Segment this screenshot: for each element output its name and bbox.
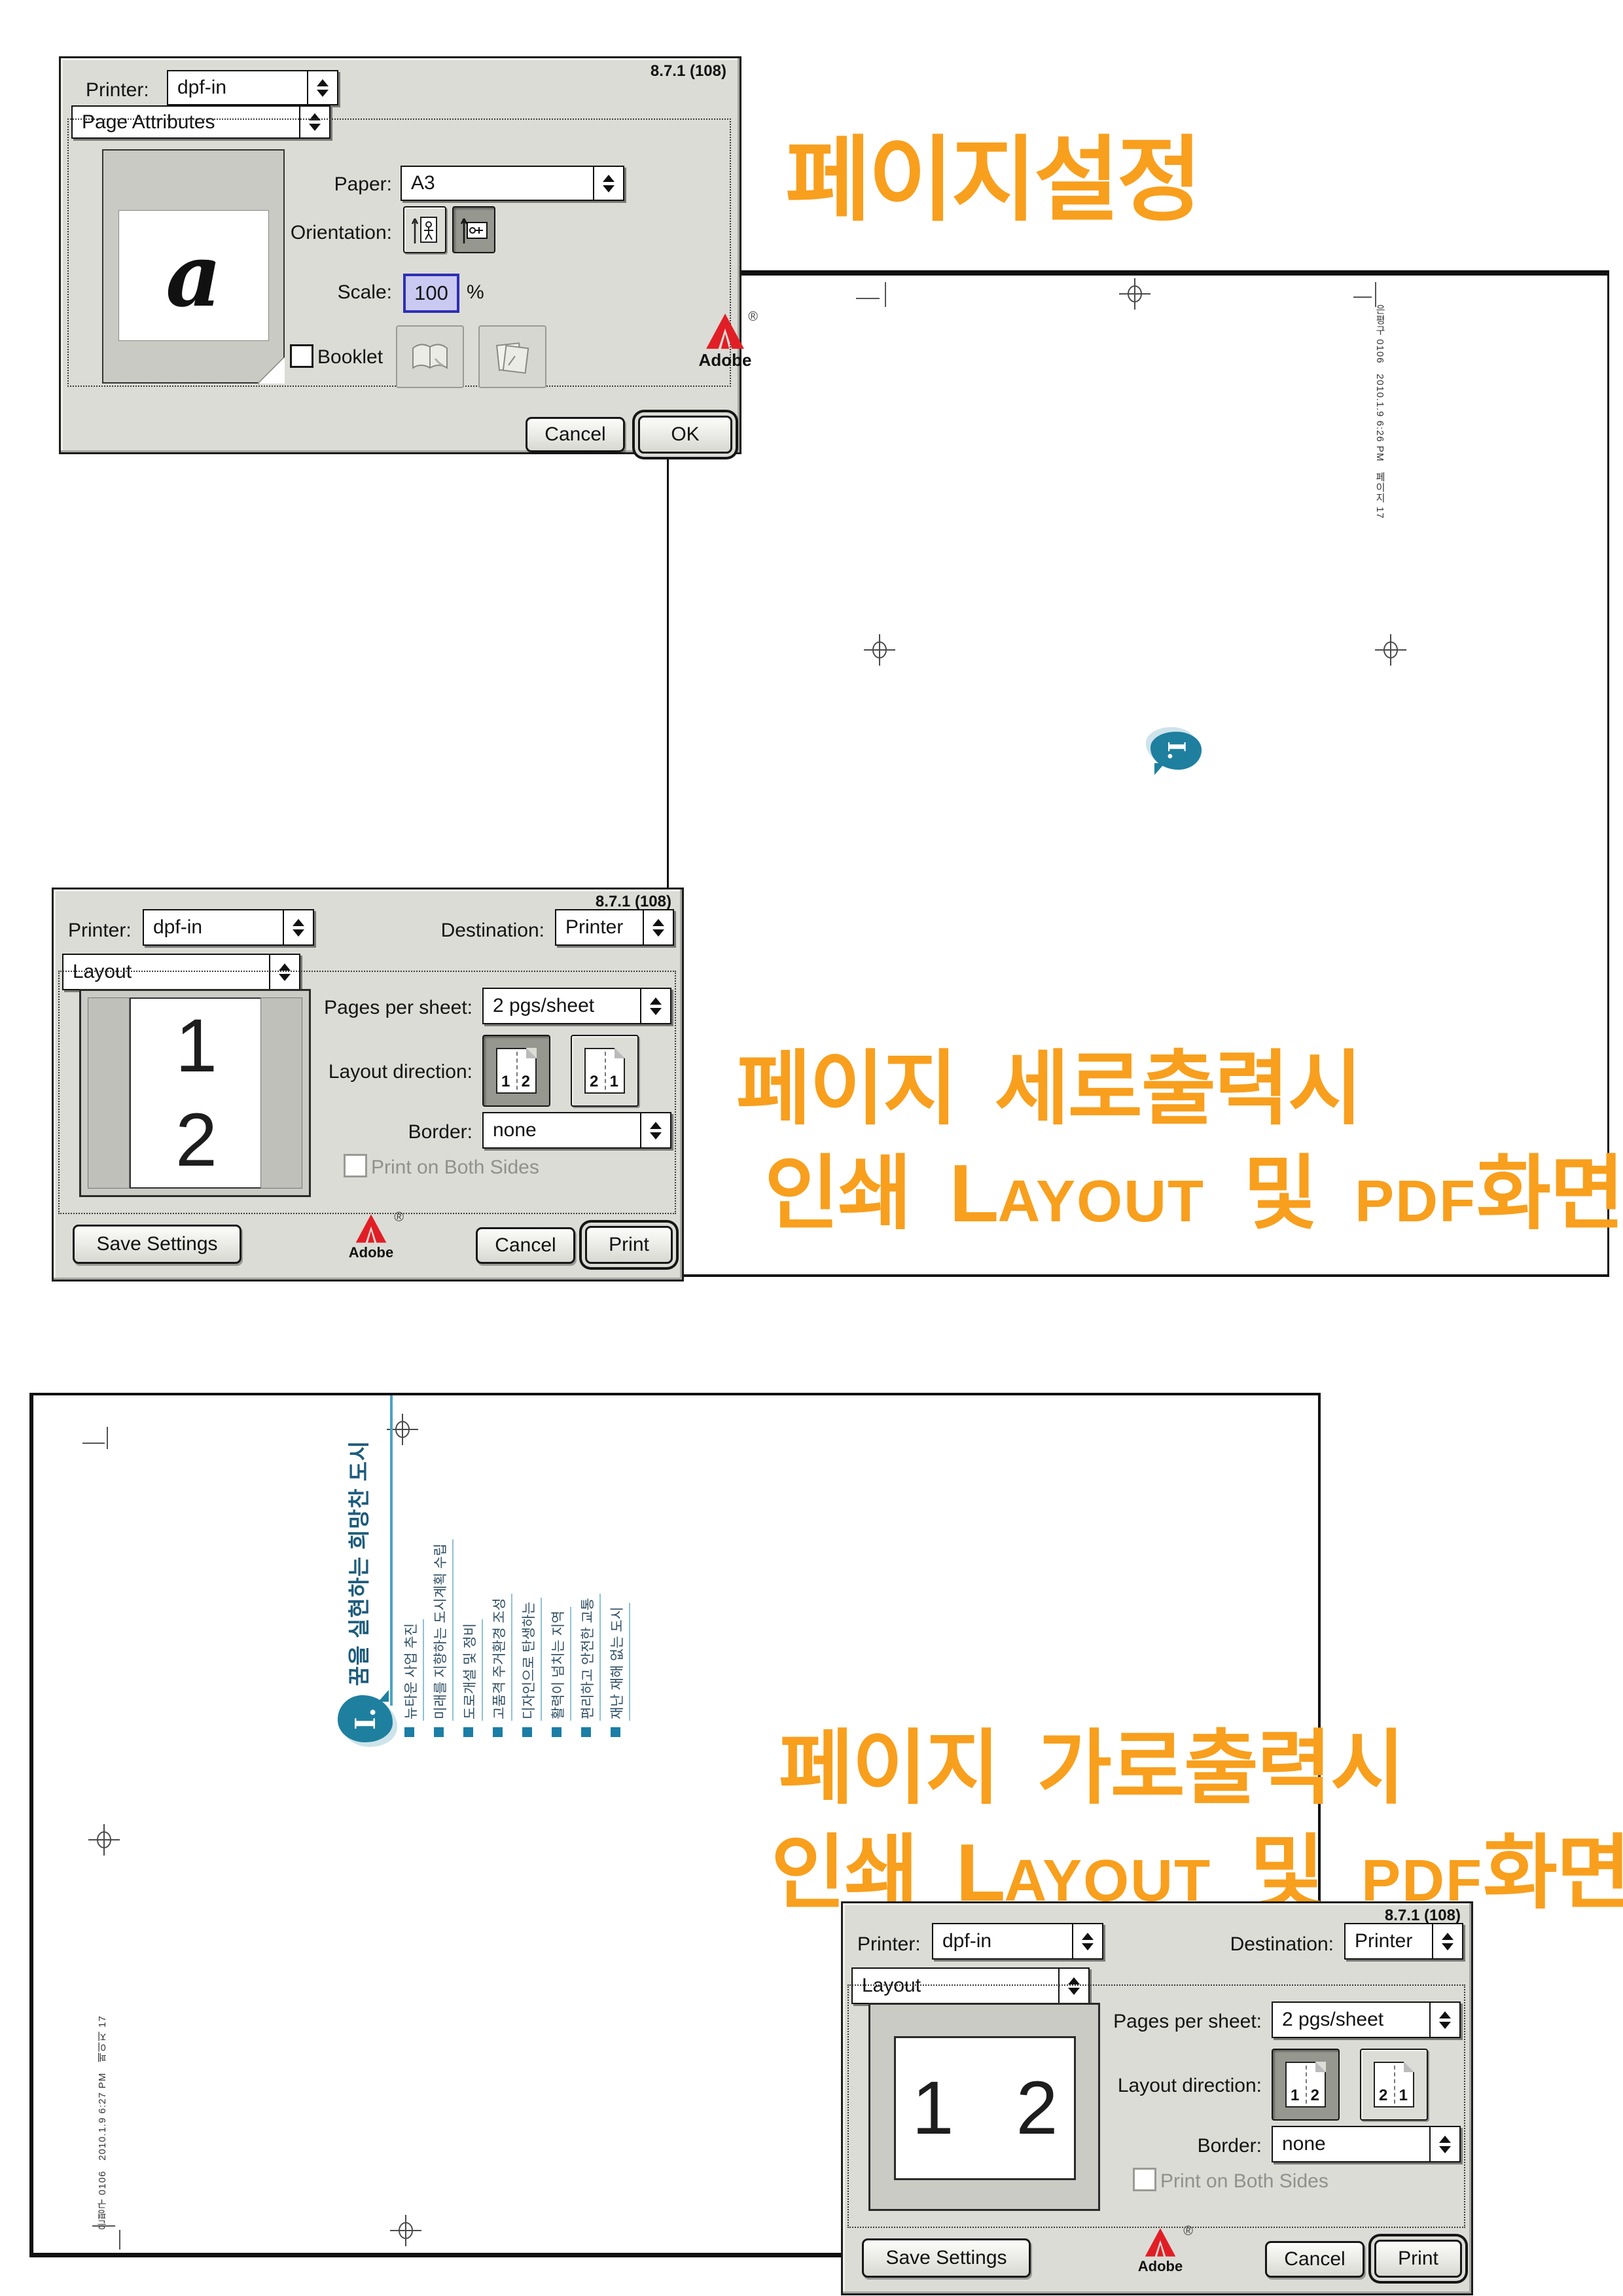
annotation-landscape-line1: 페이지 가로출력시	[779, 1728, 1404, 1809]
print-layout-dialog-landscape: 8.7.1 (108) Printer: dpf-in Destination:…	[841, 1901, 1473, 2295]
layout-direction-ltr-button[interactable]: 1 2	[482, 1035, 550, 1107]
booklet-label: Booklet	[317, 346, 383, 368]
popup-arrows-icon	[640, 989, 670, 1023]
popup-arrows-icon	[1072, 1924, 1102, 1958]
layout-direction-ltr-button[interactable]: 1 2	[1272, 2049, 1340, 2121]
annotation-portrait-line2: 인쇄 LAYOUT 및 PDF화면	[764, 1153, 1623, 1234]
bullet-icon	[522, 1727, 532, 1737]
workspace: 은평구 0106 2010.1.9 6:26 PM 페이지 17 I.	[0, 0, 1623, 2296]
print-button[interactable]: Print	[1374, 2240, 1462, 2278]
layout-direction-label: Layout direction:	[1088, 2075, 1262, 2097]
layout-direction-rtl-icon: 2 1	[584, 1048, 625, 1094]
registration-mark-icon	[1375, 634, 1406, 666]
chapter-bubble-logo: I.	[1150, 732, 1202, 770]
driver-version: 8.7.1 (108)	[1385, 1907, 1461, 1925]
page-orientation-preview: a	[102, 149, 285, 384]
cancel-button[interactable]: Cancel	[526, 417, 625, 452]
paper-popup[interactable]: A3	[401, 166, 624, 201]
registration-mark-icon	[88, 1824, 120, 1856]
popup-arrows-icon	[593, 167, 623, 200]
annotation-portrait-line1: 페이지 세로출력시	[736, 1049, 1361, 1130]
destination-label: Destination:	[410, 920, 544, 942]
document-slug-text: 은평구 0106 2010.1.9 6:27 PM 페이지 17	[96, 2034, 109, 2230]
pages-per-sheet-popup[interactable]: 2 pgs/sheet	[482, 988, 671, 1024]
preview-sheet: a	[118, 210, 269, 341]
title-rule	[390, 1395, 393, 1706]
popup-arrows-icon	[307, 71, 337, 104]
popup-arrows-icon	[643, 910, 673, 944]
registration-mark-icon	[390, 2215, 421, 2246]
adobe-logo-icon	[705, 314, 745, 349]
rotated-document-content: I. 꿈을 실현하는 희망찬 도시 뉴타운 사업 추진 미래를 지향하는 도시계…	[331, 1395, 652, 1750]
destination-popup[interactable]: Printer	[1344, 1923, 1463, 1960]
popup-arrows-icon	[1429, 2003, 1459, 2037]
page-setup-dialog: 8.7.1 (108) Printer: dpf-in Page Attribu…	[59, 56, 741, 454]
booklet-fold-button[interactable]	[478, 325, 546, 388]
popup-arrows-icon	[1432, 1924, 1462, 1958]
preview-page-number: 2	[1016, 2065, 1058, 2151]
document-title: 꿈을 실현하는 희망찬 도시	[342, 1441, 373, 1686]
registration-mark-icon	[1119, 278, 1150, 310]
preview-page-number: 2	[175, 1097, 217, 1183]
bullet-icon	[434, 1727, 444, 1737]
document-slug-text: 은평구 0106 2010.1.9 6:26 PM 페이지 17	[1373, 304, 1387, 520]
list-item: 도로개설 및 정비	[459, 1403, 489, 1737]
printer-label: Printer:	[857, 1933, 921, 1956]
print-both-sides-checkbox[interactable]	[1133, 2168, 1156, 2191]
print-button[interactable]: Print	[585, 1226, 673, 1264]
layout-preview: 1 2	[868, 2003, 1100, 2211]
preview-page-number: 1	[912, 2065, 954, 2151]
pages-per-sheet-label: Pages per sheet:	[1088, 2011, 1262, 2033]
layout-direction-rtl-icon: 2 1	[1374, 2062, 1414, 2108]
layout-direction-label: Layout direction:	[298, 1061, 473, 1083]
print-both-sides-label: Print on Both Sides	[1160, 2170, 1329, 2193]
driver-version: 8.7.1 (108)	[596, 893, 671, 911]
registered-mark: ®	[748, 310, 758, 325]
registered-mark: ®	[394, 1210, 404, 1225]
cancel-button[interactable]: Cancel	[476, 1227, 575, 1264]
adobe-logo-icon	[355, 1214, 387, 1243]
bullet-icon	[552, 1727, 562, 1737]
scale-unit: %	[467, 281, 484, 304]
portrait-orientation-icon	[410, 213, 439, 246]
bullet-icon	[581, 1727, 591, 1737]
destination-popup[interactable]: Printer	[555, 909, 674, 946]
printer-label: Printer:	[86, 79, 149, 101]
list-item: 재난 재해 없는 도시	[607, 1403, 636, 1737]
printer-label: Printer:	[68, 920, 132, 942]
open-booklet-icon	[409, 339, 451, 374]
preview-glyph: a	[166, 225, 222, 327]
border-popup[interactable]: none	[482, 1112, 671, 1149]
annotation-text: L	[950, 1149, 998, 1239]
layout-direction-ltr-icon: 1 2	[496, 1048, 537, 1094]
booklet-open-button[interactable]	[396, 325, 464, 388]
save-settings-button[interactable]: Save Settings	[862, 2238, 1031, 2278]
bullet-icon	[493, 1727, 503, 1737]
list-item: 편리하고 안전한 교통	[577, 1403, 607, 1737]
document-item-list: 뉴타운 사업 추진 미래를 지향하는 도시계획 수립 도로개설 및 정비 고품격…	[401, 1403, 636, 1737]
folded-booklet-icon	[493, 339, 532, 374]
annotation-text: 화면	[1476, 1149, 1623, 1239]
print-both-sides-checkbox[interactable]	[344, 1154, 367, 1177]
bullet-icon	[463, 1727, 473, 1737]
list-item: 미래를 지향하는 도시계획 수립	[430, 1403, 459, 1737]
preview-sheet: 1 2	[894, 2036, 1076, 2180]
orientation-label: Orientation:	[270, 222, 392, 244]
orientation-portrait-button[interactable]	[403, 206, 446, 253]
print-both-sides-label: Print on Both Sides	[371, 1157, 539, 1179]
layout-direction-rtl-button[interactable]: 2 1	[571, 1035, 639, 1107]
annotation-page-setup-title: 페이지설정	[785, 134, 1200, 227]
preview-margin	[260, 997, 302, 1189]
preview-page-number: 1	[175, 1003, 217, 1089]
bullet-icon	[404, 1727, 414, 1737]
driver-version: 8.7.1 (108)	[651, 62, 726, 81]
annotation-text: PDF	[1355, 1169, 1476, 1234]
list-item: 뉴타운 사업 추진	[401, 1403, 430, 1737]
layout-direction-rtl-button[interactable]: 2 1	[1360, 2049, 1428, 2121]
adobe-logo-icon	[1144, 2228, 1177, 2257]
adobe-logo: ® Adobe	[332, 1214, 410, 1261]
popup-arrows-icon	[1429, 2127, 1459, 2161]
folded-corner-icon	[259, 357, 285, 384]
pages-per-sheet-popup[interactable]: 2 pgs/sheet	[1272, 2001, 1461, 2038]
border-label: Border:	[298, 1121, 473, 1143]
bullet-icon	[611, 1727, 620, 1737]
border-label: Border:	[1088, 2135, 1262, 2157]
save-settings-button[interactable]: Save Settings	[73, 1225, 241, 1264]
printer-popup[interactable]: dpf-in	[932, 1923, 1103, 1960]
scale-input[interactable]: 100	[403, 274, 459, 313]
popup-arrows-icon	[640, 1113, 670, 1147]
adobe-logo: ® Adobe	[1121, 2228, 1200, 2275]
destination-label: Destination:	[1200, 1933, 1334, 1956]
preview-margin	[88, 997, 130, 1189]
layout-preview: 1 2	[79, 989, 311, 1197]
adobe-logo: ® Adobe	[686, 314, 764, 370]
annotation-text: 및	[1243, 1149, 1317, 1239]
paper-label: Paper:	[270, 173, 392, 196]
preview-sheet: 1 2	[130, 997, 263, 1189]
pages-per-sheet-label: Pages per sheet:	[298, 997, 473, 1019]
orientation-landscape-button[interactable]	[452, 206, 495, 253]
print-layout-dialog-portrait: 8.7.1 (108) Printer: dpf-in Destination:…	[52, 888, 684, 1282]
annotation-text: 화면	[1483, 1828, 1623, 1918]
layout-direction-ltr-icon: 1 2	[1285, 2062, 1326, 2108]
list-item: 고품격 주거환경 조성	[489, 1403, 518, 1737]
chapter-bubble-logo: I.	[338, 1695, 393, 1742]
popup-arrows-icon	[283, 910, 313, 944]
printer-popup[interactable]: dpf-in	[167, 70, 338, 105]
registration-mark-icon	[864, 634, 895, 666]
landscape-orientation-icon	[459, 213, 488, 246]
list-item: 활력이 넘치는 지역	[548, 1403, 577, 1737]
list-item: 디자인으로 탄생하는	[518, 1403, 548, 1737]
registered-mark: ®	[1183, 2224, 1193, 2239]
cancel-button[interactable]: Cancel	[1265, 2241, 1364, 2278]
printer-popup[interactable]: dpf-in	[143, 909, 314, 946]
annotation-text: AYOUT	[997, 1169, 1205, 1234]
booklet-checkbox[interactable]	[290, 344, 313, 368]
scale-label: Scale:	[270, 281, 392, 304]
ok-button[interactable]: OK	[638, 416, 732, 454]
border-popup[interactable]: none	[1272, 2126, 1461, 2162]
annotation-text: 인쇄	[764, 1149, 911, 1239]
